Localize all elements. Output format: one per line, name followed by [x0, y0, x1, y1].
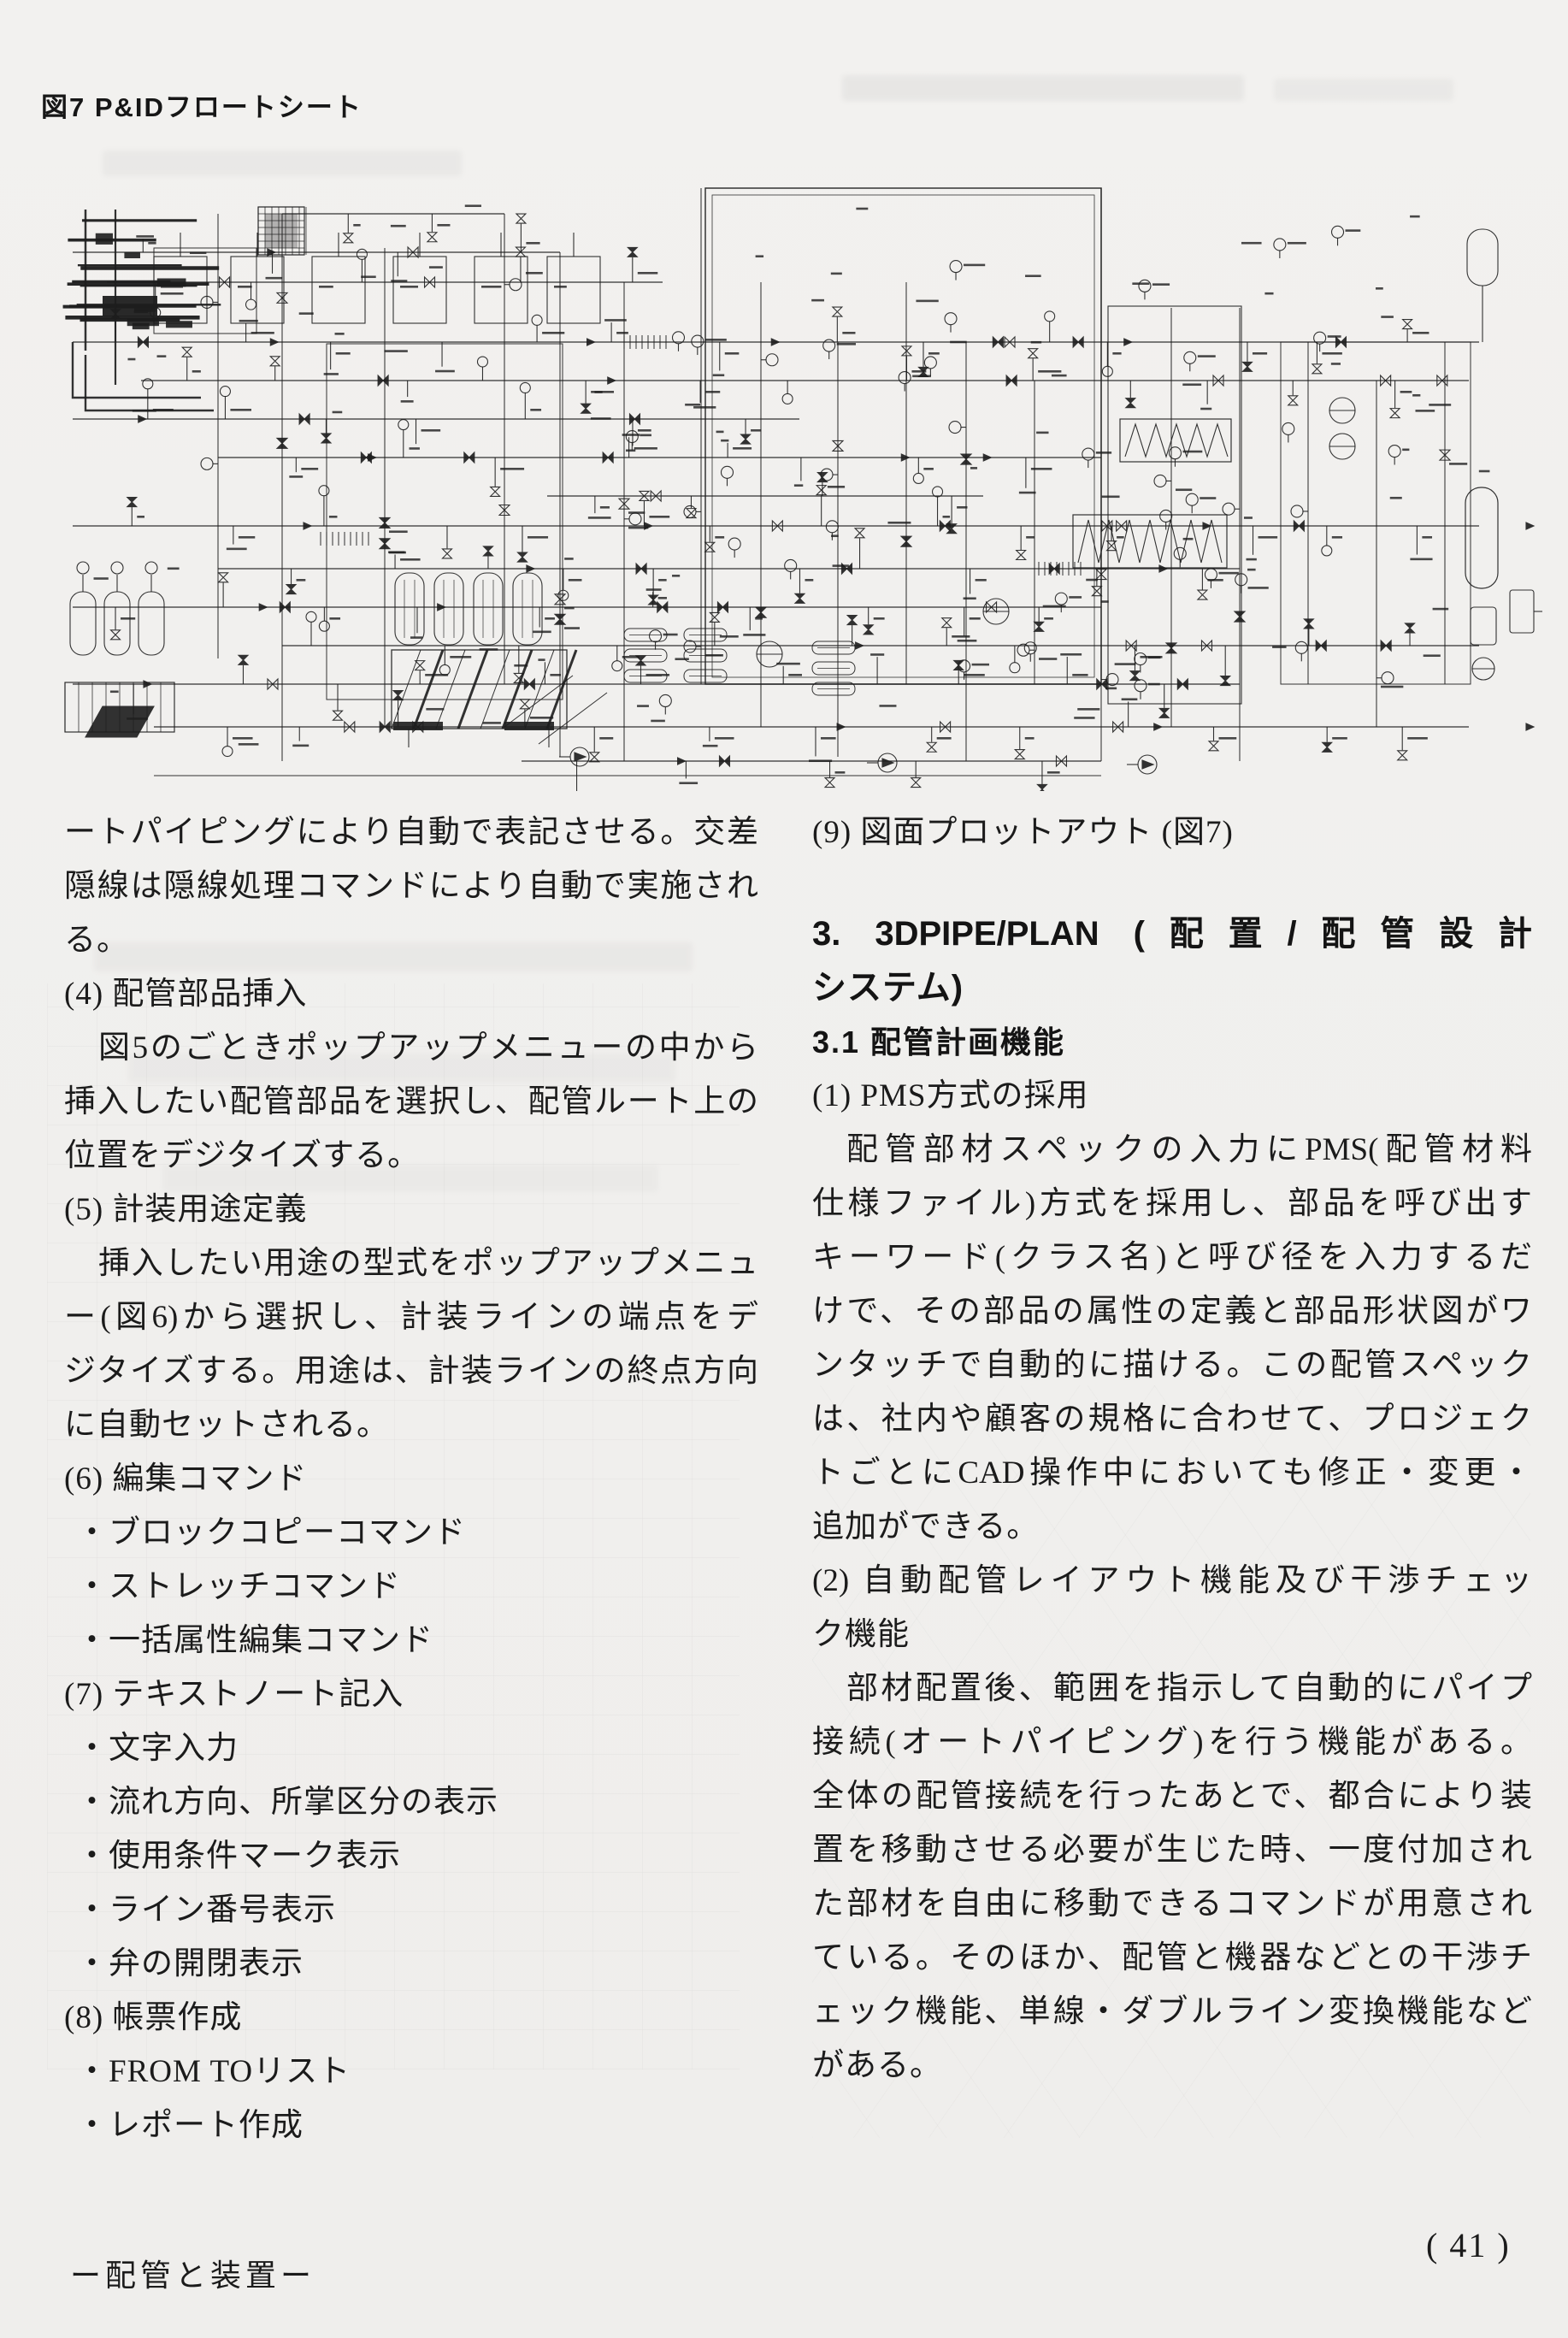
- text-line: けで、その部品の属性の定義と部品形状図がワ: [812, 1284, 1532, 1338]
- text-line: ・一括属性編集コマンド: [64, 1614, 758, 1668]
- text-line: ク機能: [812, 1608, 1532, 1662]
- text-line: 3. 3DPIPE/PLAN (配置/配管設計: [812, 907, 1532, 961]
- text-line: た部材を自由に移動できるコマンドが用意され: [812, 1877, 1532, 1931]
- text-line: ・レポート作成: [64, 2099, 758, 2152]
- text-line: (8) 帳票作成: [64, 1991, 758, 2045]
- text-line: ・使用条件マーク表示: [64, 1829, 758, 1883]
- bleed-through-artifact: [1274, 79, 1453, 101]
- text-line: ・文字入力: [64, 1721, 758, 1775]
- text-line: ンタッチで自動的に描ける。この配管スペック: [812, 1338, 1532, 1392]
- text-line: (9) 図面プロットアウト (図7): [812, 806, 1532, 859]
- journal-footer: ー配管と装置ー: [70, 2251, 315, 2295]
- text-line: 全体の配管接続を行ったあとで、都合により装: [812, 1769, 1532, 1823]
- text-line: ・ブロックコピーコマンド: [64, 1506, 758, 1560]
- text-line: (2) 自動配管レイアウト機能及び干渉チェッ: [812, 1554, 1532, 1608]
- figure-caption: 図7 P&IDフロートシート: [41, 86, 363, 124]
- text-line: ・FROM TOリスト: [64, 2045, 758, 2099]
- bleed-through-artifact: [842, 75, 1244, 101]
- text-line: 隠線は隠線処理コマンドにより自動で実施され: [64, 859, 758, 913]
- text-line: (4) 配管部品挿入: [64, 967, 758, 1021]
- text-line: ジタイズする。用途は、計装ラインの終点方向: [64, 1344, 758, 1398]
- text-line: ・弁の開閉表示: [64, 1937, 758, 1991]
- right-text-column: (9) 図面プロットアウト (図7)3. 3DPIPE/PLAN (配置/配管設…: [812, 806, 1532, 2093]
- text-line: 仕様ファイル)方式を採用し、部品を呼び出す: [812, 1177, 1532, 1231]
- text-line: 接続(オートパイピング)を行う機能がある。: [812, 1715, 1532, 1769]
- page-number: ( 41 ): [1426, 2225, 1511, 2265]
- text-line: ・流れ方向、所掌区分の表示: [64, 1775, 758, 1829]
- text-line: システム): [812, 961, 1532, 1015]
- text-line: ートパイピングにより自動で表記させる。交差: [64, 806, 758, 859]
- pid-flow-sheet-figure: [26, 128, 1542, 791]
- text-line: ー(図6)から選択し、計装ラインの端点をデ: [64, 1290, 758, 1344]
- text-line: 配管部材スペックの入力にPMS(配管材料: [812, 1123, 1532, 1177]
- text-line: トごとにCAD操作中においても修正・変更・: [812, 1446, 1532, 1500]
- text-line: ェック機能、単線・ダブルライン変換機能など: [812, 1985, 1532, 2039]
- text-line: 図5のごときポップアップメニューの中から: [64, 1021, 758, 1075]
- text-line: ・ライン番号表示: [64, 1883, 758, 1937]
- text-line: キーワード(クラス名)と呼び径を入力するだ: [812, 1231, 1532, 1284]
- text-line: は、社内や顧客の規格に合わせて、プロジェク: [812, 1392, 1532, 1446]
- left-text-column: ートパイピングにより自動で表記させる。交差隠線は隠線処理コマンドにより自動で実施…: [64, 806, 758, 2152]
- text-line: ている。そのほか、配管と機器などとの干渉チ: [812, 1931, 1532, 1985]
- text-line: (7) テキストノート記入: [64, 1668, 758, 1721]
- text-line: 挿入したい用途の型式をポップアップメニュ: [64, 1237, 758, 1290]
- text-line: ・ストレッチコマンド: [64, 1560, 758, 1614]
- text-line: (6) 編集コマンド: [64, 1452, 758, 1506]
- text-line: (5) 計装用途定義: [64, 1183, 758, 1237]
- text-line: (1) PMS方式の採用: [812, 1069, 1532, 1123]
- text-line: る。: [64, 913, 758, 967]
- text-line: 追加ができる。: [812, 1500, 1532, 1554]
- text-line: に自動セットされる。: [64, 1398, 758, 1452]
- text-line: 置を移動させる必要が生じた時、一度付加され: [812, 1823, 1532, 1877]
- text-line: 挿入したい配管部品を選択し、配管ルート上の: [64, 1075, 758, 1129]
- text-line: 部材配置後、範囲を指示して自動的にパイプ: [812, 1662, 1532, 1715]
- scanned-journal-page: 図7 P&IDフロートシート ートパイピングにより自動で表記させる。交差隠線は隠…: [0, 0, 1568, 2338]
- pid-diagram: [26, 128, 1542, 791]
- text-line: 位置をデジタイズする。: [64, 1129, 758, 1183]
- text-line: 3.1 配管計画機能: [812, 1015, 1532, 1069]
- text-line: がある。: [812, 2039, 1532, 2093]
